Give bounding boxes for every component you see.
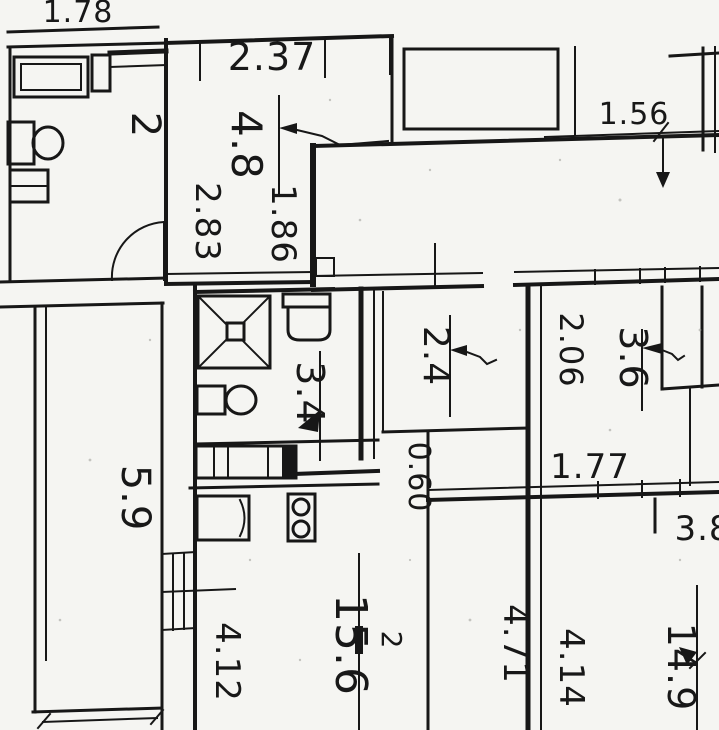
dim-label-24: 2.4 (415, 326, 456, 386)
dim-label-412: 4.12 (207, 622, 247, 702)
room-label-59: 5.9 (112, 465, 158, 532)
dim-label-471: 4.71 (495, 604, 535, 684)
dim-label-36: 3.6 (611, 326, 655, 389)
shower-stall (198, 296, 270, 368)
dim-label-237: 2.37 (228, 35, 317, 79)
dim-line-bottom (43, 718, 157, 722)
room-label-156-sup: 2 (375, 631, 408, 650)
washbasin-fixture (283, 294, 330, 340)
toilet-fixture (8, 122, 63, 164)
dim-arrow (279, 123, 297, 134)
dim-label-156: 1.56 (599, 97, 670, 132)
stove-fixture (288, 494, 315, 541)
cabinet-fixture (197, 496, 249, 540)
sink-fixture (10, 170, 48, 202)
dim-label-177: 1.77 (550, 447, 630, 487)
dim-label-178: 1.78 (43, 0, 114, 30)
room-label-34: 3.4 (288, 361, 332, 424)
dim-label-414: 4.14 (551, 628, 591, 708)
floor-plan-scan: 1.78 2.37 4.8 2.83 1.86 2 1.56 5.9 3.4 2… (0, 0, 719, 730)
labels-layer: 1.78 2.37 4.8 2.83 1.86 2 1.56 5.9 3.4 2… (43, 0, 719, 711)
room-label-wc: 2 (122, 112, 168, 138)
door-arc (112, 222, 164, 280)
dim-label-48: 4.8 (222, 110, 271, 180)
toilet-fixture-2 (197, 386, 256, 414)
dim-label-283: 2.83 (187, 182, 227, 262)
dim-arrow (656, 172, 670, 188)
floor-plan-drawing: 1.78 2.37 4.8 2.83 1.86 2 1.56 5.9 3.4 2… (0, 0, 719, 730)
scan-noise (59, 99, 702, 661)
dim-label-206: 2.06 (552, 312, 590, 387)
balcony (404, 49, 558, 129)
kitchen-counter (196, 446, 296, 478)
dim-label-186: 1.86 (263, 184, 303, 264)
room-label-149: 14.9 (659, 623, 703, 712)
dim-label-060: 0.60 (401, 442, 436, 513)
room-label-156: 15.6 (325, 594, 376, 696)
dim-label-38: 3.8 (674, 509, 719, 549)
